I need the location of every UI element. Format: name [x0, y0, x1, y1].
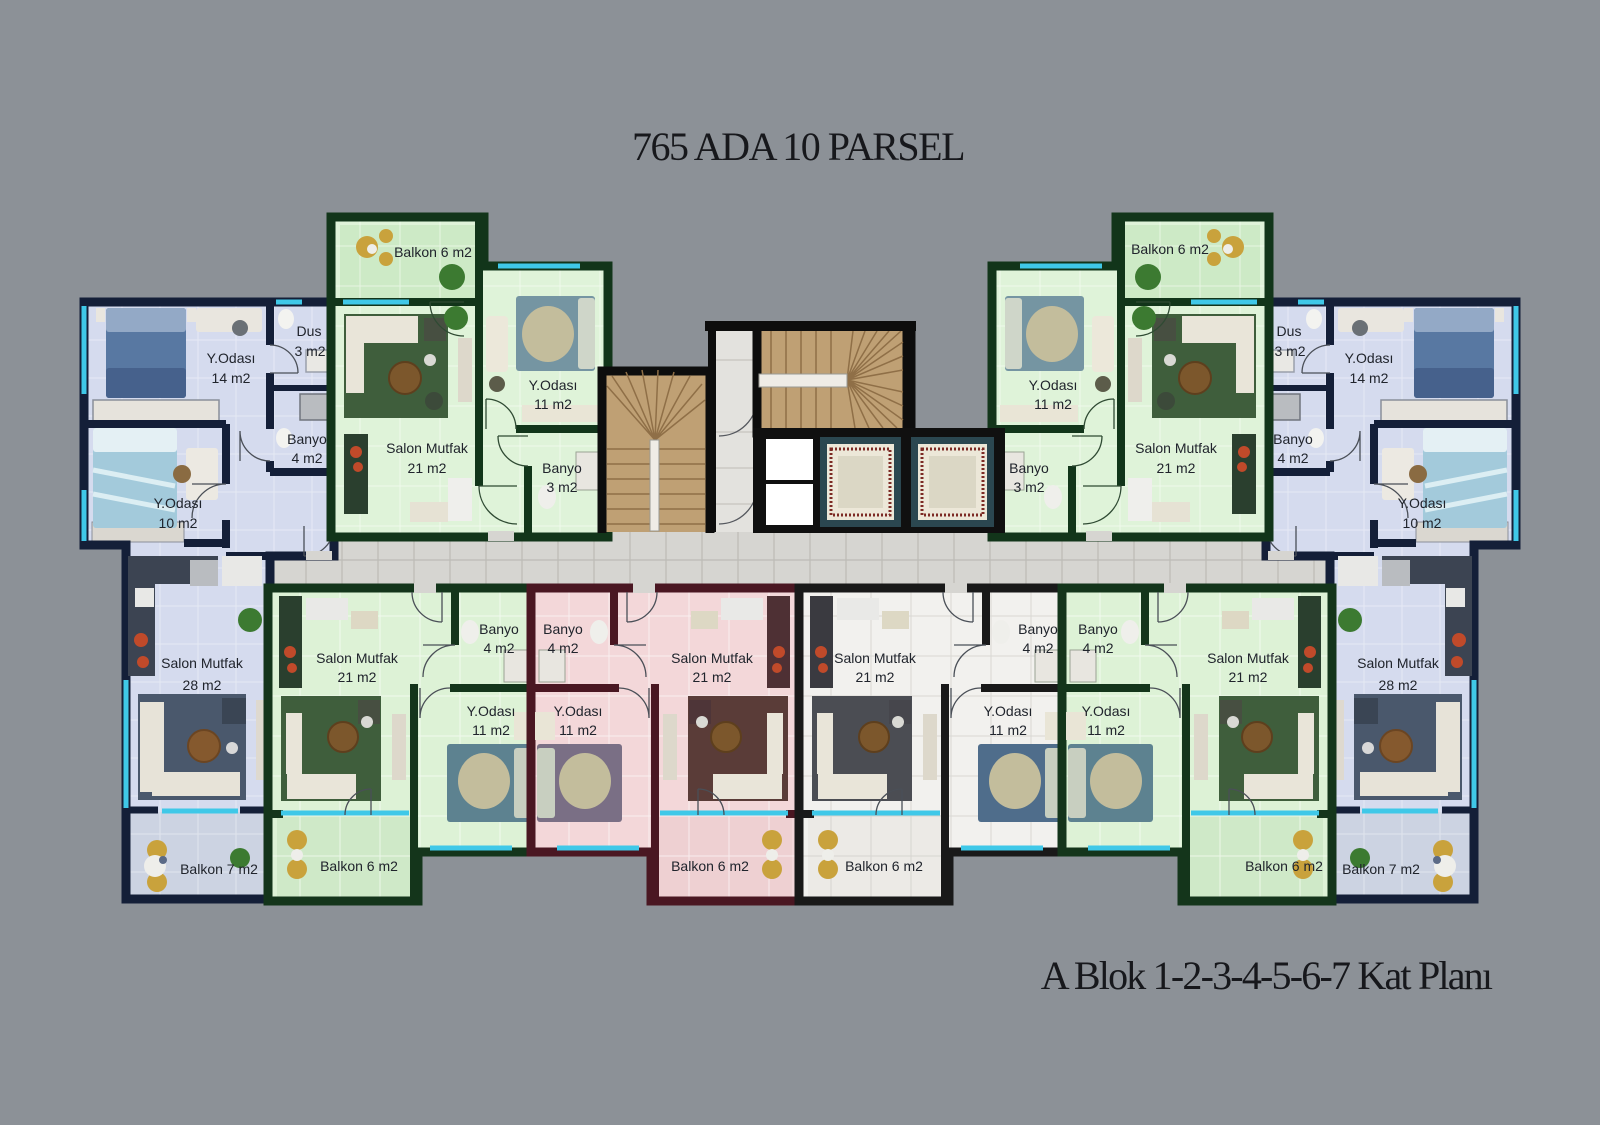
- svg-text:Salon Mutfak: Salon Mutfak: [671, 650, 754, 666]
- svg-text:Balkon 6 m2: Balkon 6 m2: [394, 244, 472, 260]
- svg-text:14 m2: 14 m2: [1350, 370, 1389, 386]
- svg-text:Y.Odası: Y.Odası: [554, 703, 603, 719]
- svg-text:11 m2: 11 m2: [1034, 396, 1072, 412]
- svg-text:14 m2: 14 m2: [212, 370, 251, 386]
- svg-text:Balkon 6 m2: Balkon 6 m2: [671, 858, 749, 874]
- svg-text:Y.Odası: Y.Odası: [207, 350, 256, 366]
- svg-text:3 m2: 3 m2: [546, 479, 577, 495]
- svg-text:3 m2: 3 m2: [294, 343, 325, 359]
- svg-text:Banyo: Banyo: [1018, 621, 1058, 637]
- svg-text:28 m2: 28 m2: [183, 677, 222, 693]
- svg-text:3 m2: 3 m2: [1013, 479, 1044, 495]
- svg-text:Dus: Dus: [297, 323, 322, 339]
- svg-text:765 ADA 10 PARSEL: 765 ADA 10 PARSEL: [632, 124, 964, 169]
- svg-text:Y.Odası: Y.Odası: [1398, 495, 1447, 511]
- svg-text:Y.Odası: Y.Odası: [529, 377, 578, 393]
- svg-text:Salon Mutfak: Salon Mutfak: [1207, 650, 1290, 666]
- svg-text:Banyo: Banyo: [543, 621, 583, 637]
- svg-text:21 m2: 21 m2: [1229, 669, 1268, 685]
- svg-text:Salon Mutfak: Salon Mutfak: [1135, 440, 1218, 456]
- svg-text:21 m2: 21 m2: [338, 669, 377, 685]
- svg-text:10 m2: 10 m2: [1403, 515, 1442, 531]
- svg-text:Banyo: Banyo: [479, 621, 519, 637]
- svg-text:21 m2: 21 m2: [693, 669, 732, 685]
- svg-text:Y.Odası: Y.Odası: [467, 703, 516, 719]
- svg-text:Banyo: Banyo: [287, 431, 327, 447]
- svg-text:21 m2: 21 m2: [856, 669, 895, 685]
- svg-text:4 m2: 4 m2: [483, 640, 514, 656]
- svg-text:Balkon 6 m2: Balkon 6 m2: [845, 858, 923, 874]
- svg-text:Salon Mutfak: Salon Mutfak: [316, 650, 399, 666]
- svg-text:Banyo: Banyo: [1078, 621, 1118, 637]
- svg-text:3 m2: 3 m2: [1274, 343, 1305, 359]
- svg-text:11 m2: 11 m2: [559, 722, 597, 738]
- svg-text:21 m2: 21 m2: [1157, 460, 1196, 476]
- svg-text:11 m2: 11 m2: [989, 722, 1027, 738]
- svg-text:Balkon 7 m2: Balkon 7 m2: [180, 861, 258, 877]
- svg-text:4 m2: 4 m2: [547, 640, 578, 656]
- svg-text:Balkon 7 m2: Balkon 7 m2: [1342, 861, 1420, 877]
- svg-text:11 m2: 11 m2: [472, 722, 510, 738]
- svg-text:Y.Odası: Y.Odası: [1082, 703, 1131, 719]
- svg-text:Y.Odası: Y.Odası: [154, 495, 203, 511]
- svg-text:4 m2: 4 m2: [291, 450, 322, 466]
- svg-text:11 m2: 11 m2: [1087, 722, 1125, 738]
- svg-text:A Blok 1-2-3-4-5-6-7 Kat Planı: A Blok 1-2-3-4-5-6-7 Kat Planı: [1041, 953, 1493, 998]
- svg-text:Balkon 6 m2: Balkon 6 m2: [320, 858, 398, 874]
- svg-text:28 m2: 28 m2: [1379, 677, 1418, 693]
- svg-text:Banyo: Banyo: [1009, 460, 1049, 476]
- svg-text:Dus: Dus: [1277, 323, 1302, 339]
- svg-text:Balkon 6 m2: Balkon 6 m2: [1245, 858, 1323, 874]
- svg-text:Salon Mutfak: Salon Mutfak: [1357, 655, 1440, 671]
- svg-text:Salon Mutfak: Salon Mutfak: [834, 650, 917, 666]
- svg-text:Banyo: Banyo: [542, 460, 582, 476]
- svg-text:4 m2: 4 m2: [1022, 640, 1053, 656]
- svg-text:Salon Mutfak: Salon Mutfak: [386, 440, 469, 456]
- svg-text:Y.Odası: Y.Odası: [984, 703, 1033, 719]
- svg-text:4 m2: 4 m2: [1082, 640, 1113, 656]
- svg-text:Balkon 6 m2: Balkon 6 m2: [1131, 241, 1209, 257]
- svg-text:Banyo: Banyo: [1273, 431, 1313, 447]
- svg-text:11 m2: 11 m2: [534, 396, 572, 412]
- svg-text:4 m2: 4 m2: [1277, 450, 1308, 466]
- svg-text:Y.Odası: Y.Odası: [1029, 377, 1078, 393]
- svg-text:Y.Odası: Y.Odası: [1345, 350, 1394, 366]
- svg-text:Salon Mutfak: Salon Mutfak: [161, 655, 244, 671]
- svg-text:10 m2: 10 m2: [159, 515, 198, 531]
- svg-text:21 m2: 21 m2: [408, 460, 447, 476]
